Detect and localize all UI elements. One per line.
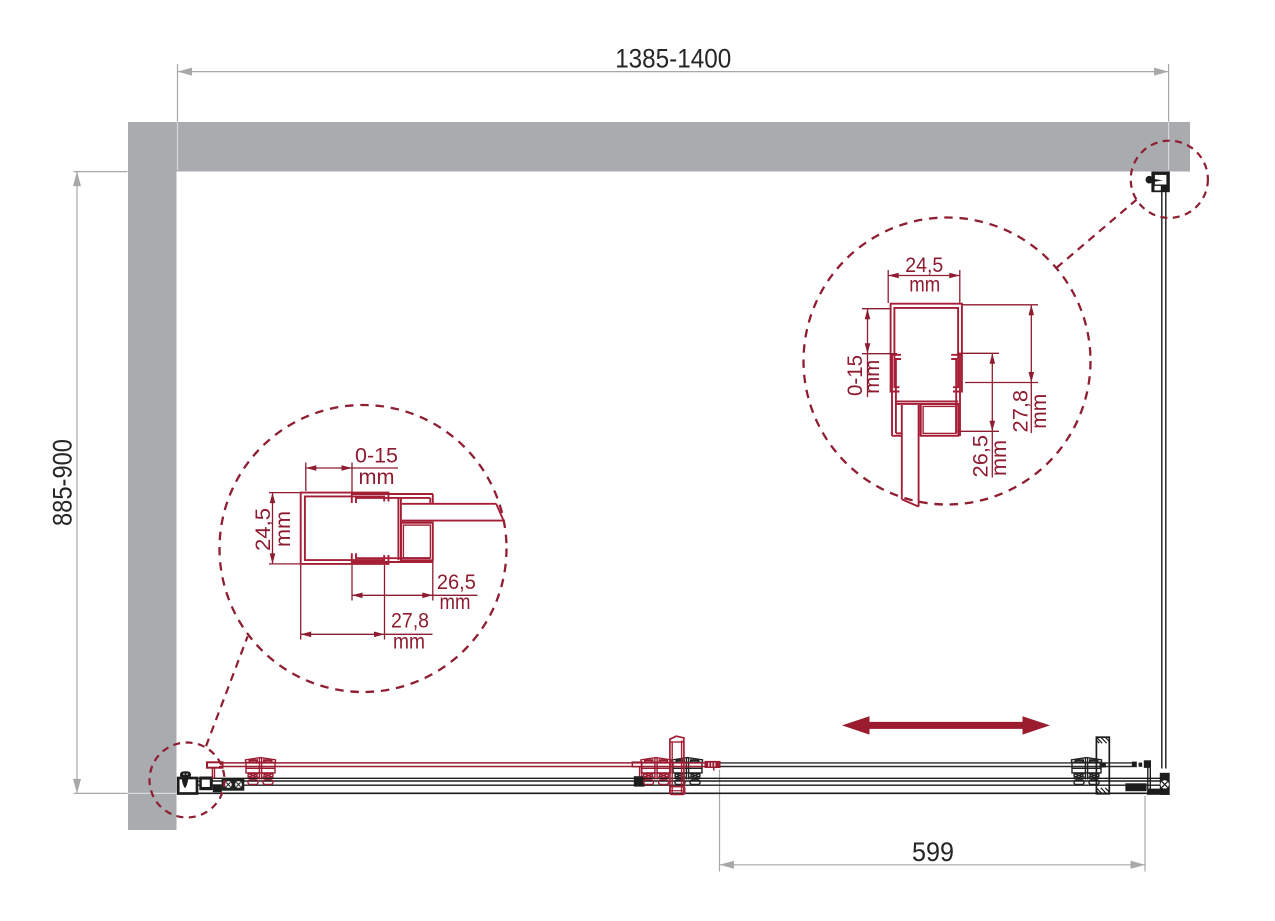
svg-text:599: 599 bbox=[912, 837, 954, 867]
svg-text:27,8: 27,8 bbox=[391, 610, 429, 633]
svg-text:mm: mm bbox=[988, 440, 1011, 476]
svg-text:0-15: 0-15 bbox=[355, 445, 398, 468]
svg-text:mm: mm bbox=[272, 511, 295, 547]
svg-text:mm: mm bbox=[440, 591, 471, 614]
svg-text:mm: mm bbox=[1028, 394, 1051, 429]
svg-text:mm: mm bbox=[909, 273, 940, 296]
svg-text:mm: mm bbox=[359, 466, 395, 489]
svg-text:885-900: 885-900 bbox=[48, 439, 78, 526]
svg-text:1385-1400: 1385-1400 bbox=[615, 44, 731, 74]
svg-text:mm: mm bbox=[393, 630, 425, 653]
svg-text:mm: mm bbox=[861, 360, 884, 394]
